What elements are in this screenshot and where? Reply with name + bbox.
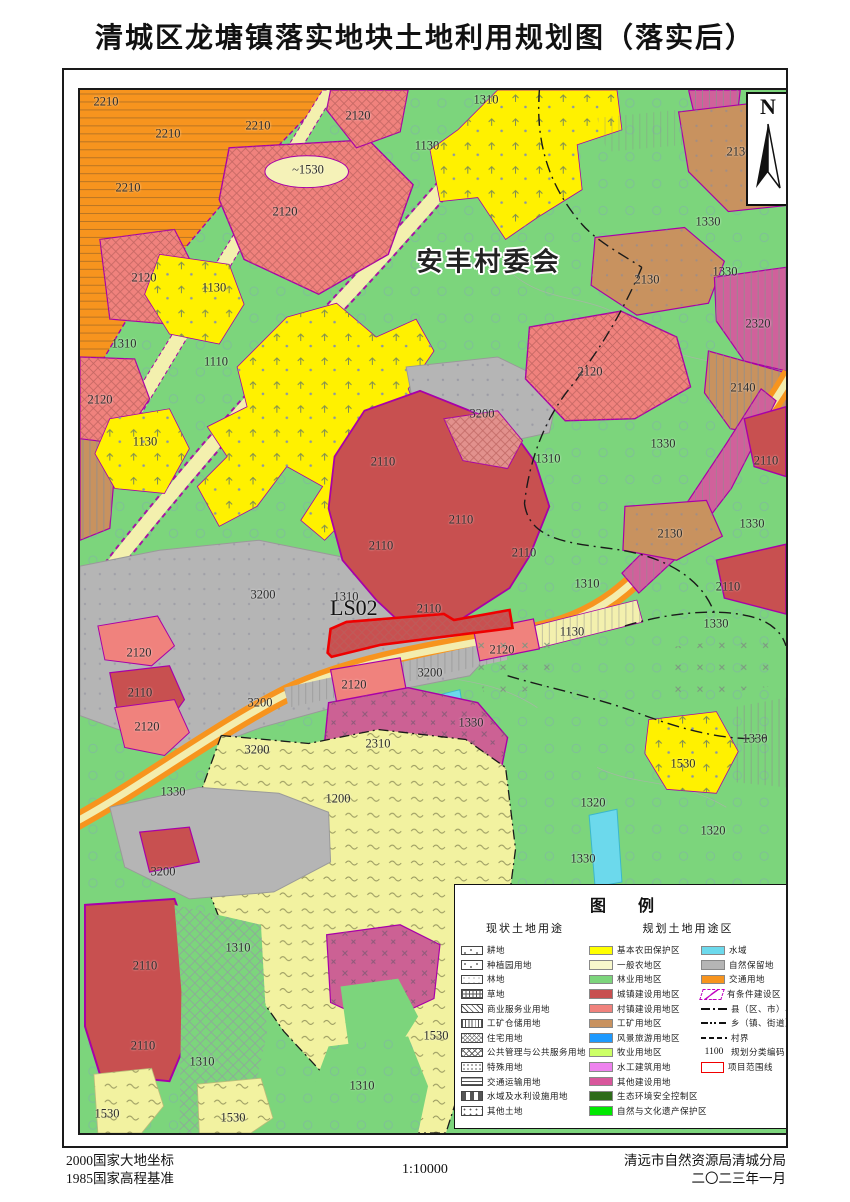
dashes-pattern-swatch (461, 1091, 483, 1101)
legend-item-planned: 村镇建设用地区 (589, 1001, 701, 1016)
legend-item-label: 村界 (731, 1032, 749, 1044)
region-code-label: 1310 (575, 577, 600, 592)
legend-item-misc: 自然保留地 (701, 958, 788, 973)
legend-item-label: 特殊用地 (487, 1061, 523, 1073)
legend-item-planned: 水工建筑用地 (589, 1060, 701, 1075)
legend-item-planned: 林业用地区 (589, 972, 701, 987)
region-code-label: 2210 (156, 127, 181, 142)
region-code-label: 2130 (658, 527, 683, 542)
region-code-label: 1330 (743, 732, 768, 747)
color-swatch (589, 1048, 613, 1058)
region-code-label: 1310 (536, 452, 561, 467)
village-committee-label: 安丰村委会 (416, 242, 561, 279)
footer-agency: 清远市自然资源局清城分局 二〇二三年一月 (624, 1152, 786, 1188)
region-code-label: 1330 (696, 215, 721, 230)
legend-item-label: 一般农地区 (617, 959, 662, 971)
diamonds-pattern-swatch (461, 1048, 483, 1058)
map-area[interactable]: 2210221022102210~15302120212021202120212… (78, 88, 788, 1135)
legend-item-label: 基本农田保护区 (617, 944, 680, 956)
sparse-dots-pattern-swatch (461, 975, 483, 985)
legend-item-label: 自然与文化遗产保护区 (617, 1105, 707, 1117)
legend-item-label: 规划分类编码 (731, 1046, 785, 1058)
region-code-label: 2120 (273, 205, 298, 220)
legend-item-label: 种植园用地 (487, 959, 532, 971)
region-code-label: 2110 (417, 602, 442, 617)
legend-item-label: 公共管理与公共服务用地 (487, 1046, 586, 1058)
region-code-label: 2120 (342, 678, 367, 693)
legend-item-current: 耕地 (461, 943, 589, 958)
parcel-code-label: LS02 (330, 595, 378, 621)
region-code-label: 2140 (731, 381, 756, 396)
legend-item-planned: 风景旅游用地区 (589, 1031, 701, 1046)
region-code-label: 2120 (346, 109, 371, 124)
legend-item-label: 草地 (487, 988, 505, 1000)
legend-item-planned: 一般农地区 (589, 958, 701, 973)
region-code-label: 1530 (95, 1107, 120, 1122)
legend-item-label: 林地 (487, 973, 505, 985)
region-code-label: 3200 (248, 696, 273, 711)
region-code-label: 1330 (161, 785, 186, 800)
region-code-label: 2210 (116, 181, 141, 196)
color-swatch (589, 1106, 613, 1116)
region-code-label: 2130 (635, 273, 660, 288)
legend-item-label: 县（区、市）界 (731, 1003, 788, 1015)
legend-item-label: 林业用地区 (617, 973, 662, 985)
region-code-label: 2110 (449, 513, 474, 528)
region-code-label: 1110 (204, 355, 228, 370)
legend-item-planned: 其他建设用地 (589, 1074, 701, 1089)
north-arrow-icon (750, 120, 786, 196)
page: 清城区龙塘镇落实地块土地利用规划图（落实后） (0, 0, 850, 1202)
region-code-label: 1330 (459, 716, 484, 731)
region-code-label: 1130 (560, 625, 585, 640)
legend-item-current: 林地 (461, 972, 589, 987)
legend-item-label: 村镇建设用地区 (617, 1003, 680, 1015)
region-code-label: 1130 (202, 281, 227, 296)
color-swatch (589, 1019, 613, 1029)
legend-item-misc: 县（区、市）界 (701, 1001, 788, 1016)
legend-planned-header: 规划土地用途区 (589, 920, 787, 936)
hlines-pattern-swatch (461, 1077, 483, 1087)
project-boundary-icon (701, 1062, 724, 1073)
region-code-label: 3200 (470, 407, 495, 422)
legend-item-current: 水域及水利设施用地 (461, 1089, 589, 1104)
region-code-label: 3200 (245, 743, 270, 758)
region-code-label: 1330 (651, 437, 676, 452)
legend-item-current: 工矿仓储用地 (461, 1016, 589, 1031)
legend-item-label: 项目范围线 (728, 1061, 773, 1073)
color-swatch (589, 1004, 613, 1014)
region-code-label: 2120 (132, 271, 157, 286)
region-code-label: 1130 (133, 435, 158, 450)
legend-panel: 图 例 现状土地用途 耕地种植园用地林地草地商业服务业用地工矿仓储用地住宅用地公… (454, 884, 788, 1129)
legend-planned-items: 基本农田保护区一般农地区林业用地区城镇建设用地区村镇建设用地区工矿用地区风景旅游… (589, 943, 701, 1118)
legend-current-items: 耕地种植园用地林地草地商业服务业用地工矿仓储用地住宅用地公共管理与公共服务用地特… (461, 943, 589, 1118)
legend-item-misc: 1100规划分类编码 (701, 1045, 788, 1060)
region-code-label: 3200 (418, 666, 443, 681)
region-code-label: 2120 (88, 393, 113, 408)
region-code-label: 1310 (112, 337, 137, 352)
legend-item-misc: 村界 (701, 1031, 788, 1046)
region-code-label: 2110 (128, 686, 153, 701)
region-code-label: 2120 (135, 720, 160, 735)
color-swatch (589, 1091, 613, 1101)
region-code-label: 1330 (740, 517, 765, 532)
color-swatch (701, 946, 725, 956)
region-code-label: 1310 (226, 941, 251, 956)
legend-item-label: 风景旅游用地区 (617, 1032, 680, 1044)
color-swatch (589, 989, 613, 999)
color-swatch (589, 975, 613, 985)
color-swatch (701, 975, 725, 985)
legend-item-planned: 牧业用地区 (589, 1045, 701, 1060)
dotgrid-pattern-swatch (461, 1062, 483, 1072)
legend-item-current: 特殊用地 (461, 1060, 589, 1075)
region-code-label: 2110 (754, 454, 779, 469)
town-boundary-icon (701, 1022, 727, 1024)
legend-current-header: 现状土地用途 (461, 920, 589, 936)
legend-item-misc: 乡（镇、街道）界 (701, 1016, 788, 1031)
north-letter: N (748, 94, 788, 120)
footer-date: 二〇二三年一月 (624, 1170, 786, 1188)
region-code-label: 2110 (716, 580, 741, 595)
region-code-label: 1330 (571, 852, 596, 867)
legend-item-current: 交通运输用地 (461, 1074, 589, 1089)
legend-item-label: 工矿用地区 (617, 1017, 662, 1029)
region-code-label: 2120 (490, 643, 515, 658)
region-code-label: ~1530 (292, 163, 324, 178)
legend-item-label: 乡（镇、街道）界 (731, 1017, 788, 1029)
color-swatch (589, 1033, 613, 1043)
legend-item-label: 交通运输用地 (487, 1076, 541, 1088)
legend-item-planned: 生态环境安全控制区 (589, 1089, 701, 1104)
legend-item-label: 耕地 (487, 944, 505, 956)
legend-item-planned: 基本农田保护区 (589, 943, 701, 958)
ticks-pattern-swatch (461, 946, 483, 956)
legend-item-label: 牧业用地区 (617, 1046, 662, 1058)
region-code-label: 2210 (94, 95, 119, 110)
legend-item-current: 草地 (461, 987, 589, 1002)
legend-item-label: 其他建设用地 (617, 1076, 671, 1088)
legend-item-misc: 水域 (701, 943, 788, 958)
north-arrow: N (746, 92, 788, 206)
legend-item-current: 种植园用地 (461, 958, 589, 973)
village-boundary-icon (701, 1037, 727, 1039)
dots-pattern-swatch (461, 1106, 483, 1116)
crosshatch-pattern-swatch (461, 1033, 483, 1043)
region-code-label: 2120 (127, 646, 152, 661)
map-title: 清城区龙塘镇落实地块土地利用规划图（落实后） (0, 16, 850, 56)
region-code-label: 1200 (326, 792, 351, 807)
legend-item-planned: 工矿用地区 (589, 1016, 701, 1031)
legend-item-label: 自然保留地 (729, 959, 774, 971)
region-code-label: 3200 (151, 865, 176, 880)
legend-item-label: 水工建筑用地 (617, 1061, 671, 1073)
diag-pattern-swatch (461, 1004, 483, 1014)
legend-item-label: 商业服务业用地 (487, 1003, 550, 1015)
region-code-label: 2110 (371, 455, 396, 470)
legend-item-current: 商业服务业用地 (461, 1001, 589, 1016)
grid-pattern-swatch (461, 989, 483, 999)
region-code-label: 1130 (415, 139, 440, 154)
legend-title: 图 例 (455, 892, 788, 916)
legend-item-label: 水域及水利设施用地 (487, 1090, 568, 1102)
legend-misc-items: 水域自然保留地交通用地有条件建设区县（区、市）界乡（镇、街道）界村界1100规划… (701, 943, 788, 1118)
color-swatch (589, 946, 613, 956)
legend-item-label: 交通用地 (729, 973, 765, 985)
legend-item-label: 住宅用地 (487, 1032, 523, 1044)
region-code-label: 1320 (581, 796, 606, 811)
region-code-label: 1320 (701, 824, 726, 839)
region-code-label: 2310 (366, 737, 391, 752)
region-code-label: 1310 (350, 1079, 375, 1094)
color-swatch (701, 960, 725, 970)
legend-item-misc: 有条件建设区 (701, 987, 788, 1002)
region-code-label: 2210 (246, 119, 271, 134)
legend-item-planned: 自然与文化遗产保护区 (589, 1104, 701, 1119)
region-code-label: 1530 (221, 1111, 246, 1126)
region-code-label: 2320 (746, 317, 771, 332)
region-code-label: 2110 (131, 1039, 156, 1054)
region-code-label: 2120 (578, 365, 603, 380)
vlines-pattern-swatch (461, 1019, 483, 1029)
region-code-label: 1310 (474, 93, 499, 108)
footer-agency-name: 清远市自然资源局清城分局 (624, 1152, 786, 1170)
region-code-label: 2110 (512, 546, 537, 561)
legend-item-current: 其他土地 (461, 1104, 589, 1119)
legend-item-label: 有条件建设区 (727, 988, 781, 1000)
plan-code-sample: 1100 (701, 1047, 727, 1057)
legend-item-current: 公共管理与公共服务用地 (461, 1045, 589, 1060)
color-swatch (589, 1077, 613, 1087)
legend-item-label: 城镇建设用地区 (617, 988, 680, 1000)
legend-item-current: 住宅用地 (461, 1031, 589, 1046)
color-swatch (589, 960, 613, 970)
region-code-label: 1530 (671, 757, 696, 772)
region-code-label: 1310 (190, 1055, 215, 1070)
seedling-pattern-swatch (461, 960, 483, 970)
legend-item-misc: 项目范围线 (701, 1060, 788, 1075)
conditional-zone-icon (699, 989, 725, 1000)
legend-item-label: 其他土地 (487, 1105, 523, 1117)
region-code-label: 1530 (424, 1029, 449, 1044)
color-swatch (589, 1062, 613, 1072)
legend-item-misc: 交通用地 (701, 972, 788, 987)
region-code-label: 1330 (713, 265, 738, 280)
region-code-label: 2110 (369, 539, 394, 554)
county-boundary-icon (701, 1008, 727, 1010)
legend-item-label: 水域 (729, 944, 747, 956)
legend-item-label: 生态环境安全控制区 (617, 1090, 698, 1102)
region-code-label: 3200 (251, 588, 276, 603)
region-code-label: 1330 (704, 617, 729, 632)
legend-item-label: 工矿仓储用地 (487, 1017, 541, 1029)
region-code-label: 2110 (133, 959, 158, 974)
legend-item-planned: 城镇建设用地区 (589, 987, 701, 1002)
